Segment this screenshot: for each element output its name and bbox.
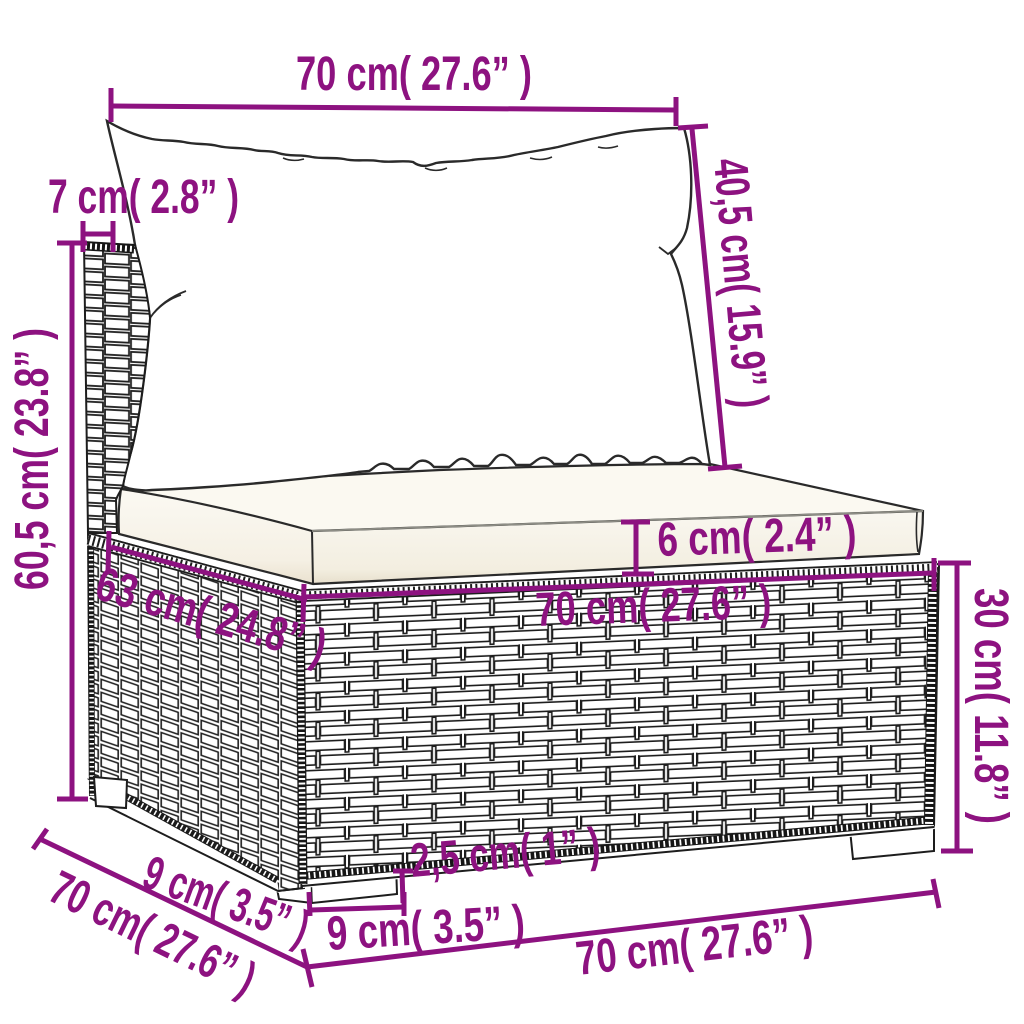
svg-text:60,5 cm( 23.8” ): 60,5 cm( 23.8” ) <box>6 328 59 590</box>
svg-text:6 cm( 2.4” ): 6 cm( 2.4” ) <box>657 507 858 567</box>
svg-text:30 cm( 11.8” ): 30 cm( 11.8” ) <box>964 588 1017 824</box>
svg-text:70 cm( 27.6” ): 70 cm( 27.6” ) <box>535 576 773 637</box>
svg-text:7 cm( 2.8” ): 7 cm( 2.8” ) <box>48 171 239 224</box>
svg-text:70 cm( 27.6” ): 70 cm( 27.6” ) <box>296 48 532 101</box>
